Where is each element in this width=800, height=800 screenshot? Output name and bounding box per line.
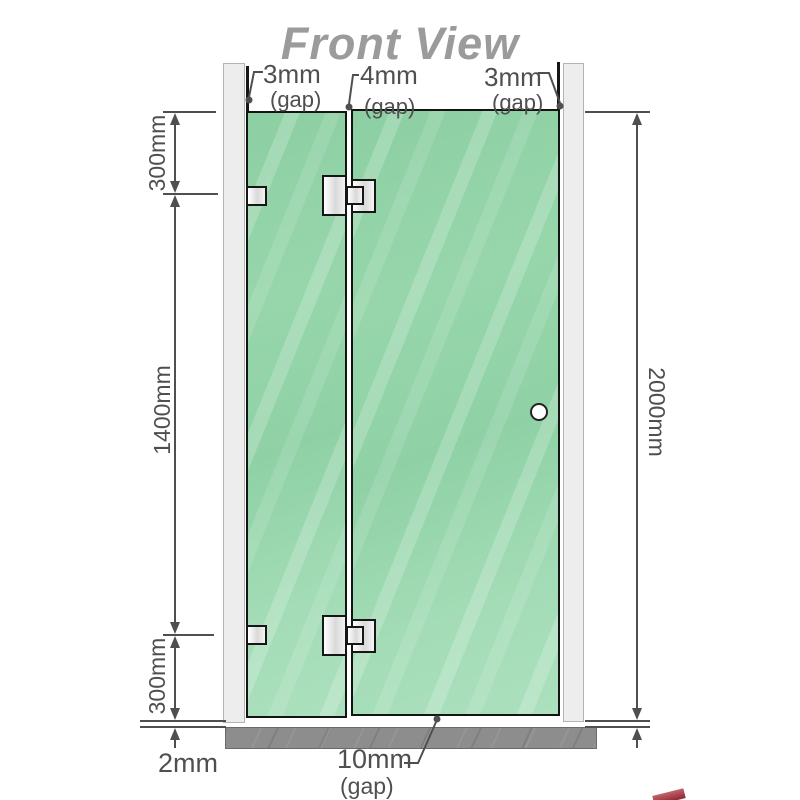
gap-label-top-left-note: (gap) <box>270 89 321 111</box>
height-label-right-total: 2000mm <box>644 359 670 465</box>
front-view-diagram: Front View <box>0 0 800 800</box>
height-label-left-top: 300mm <box>144 108 170 198</box>
right-wall <box>563 63 584 722</box>
gap-label-bottom-center-value: 10mm <box>337 746 412 773</box>
gap-label-top-right-value: 3mm <box>484 64 543 90</box>
gap-label-top-left-value: 3mm <box>263 61 321 87</box>
gap-label-top-right: 3mm (gap) <box>484 64 543 114</box>
bottom-hinge-clamp-jaw <box>346 626 364 645</box>
gap-label-top-center-value: 4mm <box>360 62 418 88</box>
gap-label-bottom-center-note: (gap) <box>340 775 412 798</box>
top-hinge-clamp-jaw <box>346 186 364 205</box>
left-wall <box>223 63 245 723</box>
gap-label-bottom-center: 10mm (gap) <box>337 746 412 798</box>
gap-label-top-center: 4mm (gap) <box>360 62 418 118</box>
gap-label-top-left: 3mm (gap) <box>263 61 321 111</box>
top-wall-bracket <box>246 186 267 206</box>
height-label-left-bottom: 300mm <box>144 631 170 721</box>
height-label-left-middle: 1400mm <box>149 357 175 463</box>
gap-label-bottom-left: 2mm <box>158 750 218 777</box>
door-glass-panel <box>351 109 560 716</box>
top-hinge-left-plate <box>322 175 347 216</box>
right-dimension-arrowheads <box>632 113 642 740</box>
bottom-wall-bracket <box>246 625 267 645</box>
gap-label-top-right-note: (gap) <box>492 92 543 114</box>
right-dimension-ticks <box>585 112 650 748</box>
gap-label-top-center-note: (gap) <box>364 96 418 118</box>
watermark-logo-partial <box>652 788 685 800</box>
door-knob <box>530 403 548 421</box>
bottom-hinge-left-plate <box>322 615 347 656</box>
